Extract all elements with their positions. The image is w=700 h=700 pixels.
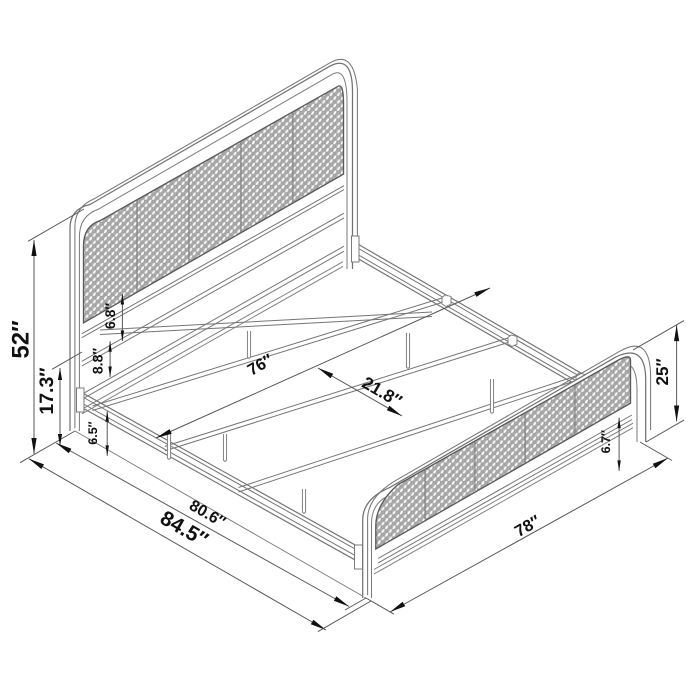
- svg-text:21.8″: 21.8″: [359, 372, 406, 411]
- svg-text:8.8″: 8.8″: [89, 348, 105, 374]
- svg-text:25″: 25″: [653, 358, 672, 385]
- svg-text:6.8″: 6.8″: [102, 303, 118, 329]
- svg-text:78″: 78″: [512, 512, 544, 541]
- svg-text:17.3″: 17.3″: [36, 367, 58, 414]
- svg-text:6.5″: 6.5″: [86, 421, 100, 444]
- svg-text:6.7″: 6.7″: [599, 430, 613, 453]
- svg-text:52″: 52″: [7, 320, 34, 359]
